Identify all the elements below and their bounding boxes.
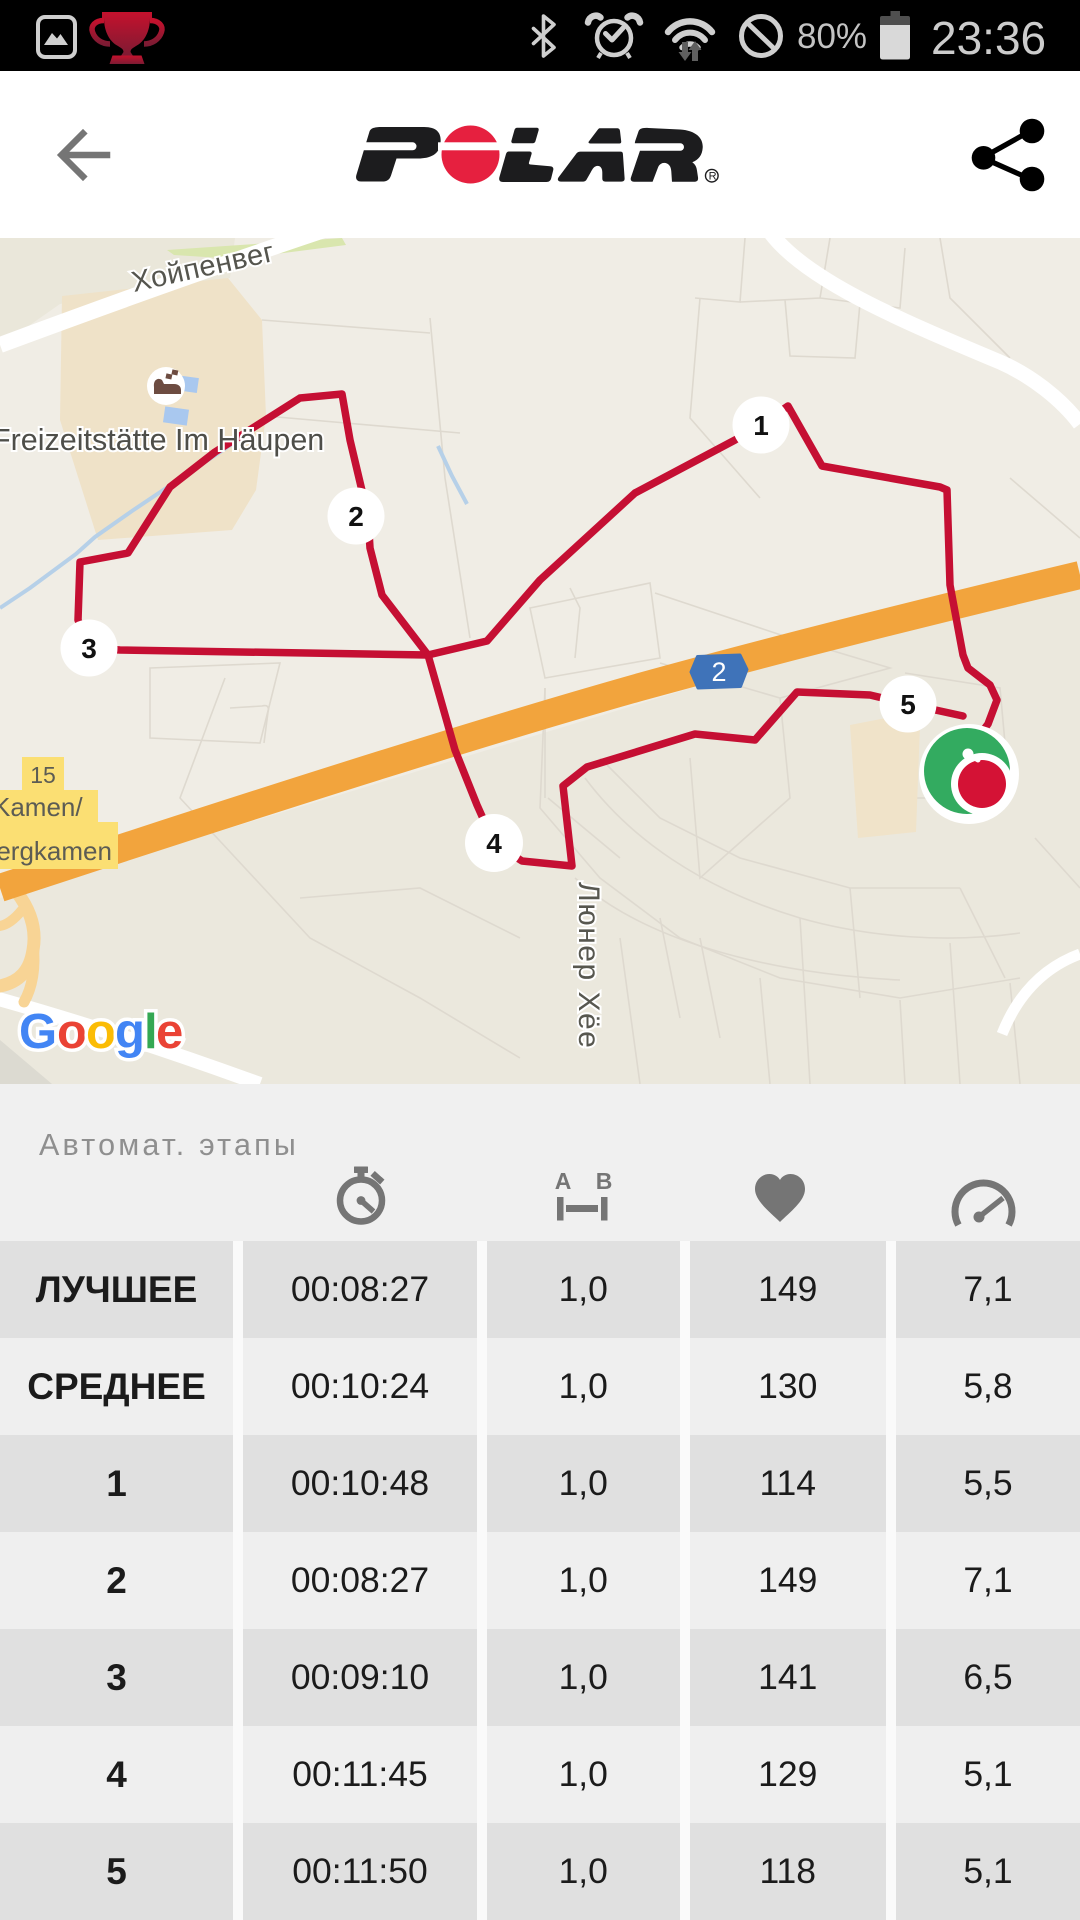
svg-text:R: R	[709, 171, 717, 183]
svg-text:A: A	[555, 1168, 572, 1194]
svg-text:4: 4	[486, 828, 502, 859]
svg-text:Kamen/: Kamen/	[0, 792, 83, 822]
svg-text:80%: 80%	[797, 17, 867, 56]
svg-text:B: B	[596, 1168, 613, 1194]
svg-text:3: 3	[81, 633, 97, 664]
svg-text:e: e	[156, 1005, 183, 1059]
svg-text:15: 15	[30, 762, 56, 788]
svg-text:5: 5	[900, 689, 916, 720]
svg-text:g: g	[115, 1005, 145, 1059]
svg-text:23:36: 23:36	[931, 12, 1046, 64]
svg-text:Люнер Хёе: Люнер Хёе	[572, 882, 605, 1049]
svg-text:Bergkamen: Bergkamen	[0, 836, 112, 866]
svg-text:1: 1	[753, 410, 769, 441]
svg-text:Freizeitstätte Im Häupen: Freizeitstätte Im Häupen	[0, 423, 324, 457]
svg-text:G: G	[19, 1005, 57, 1059]
svg-text:2: 2	[711, 657, 726, 687]
svg-text:o: o	[86, 1005, 116, 1059]
svg-text:2: 2	[348, 501, 364, 532]
svg-text:o: o	[57, 1005, 87, 1059]
